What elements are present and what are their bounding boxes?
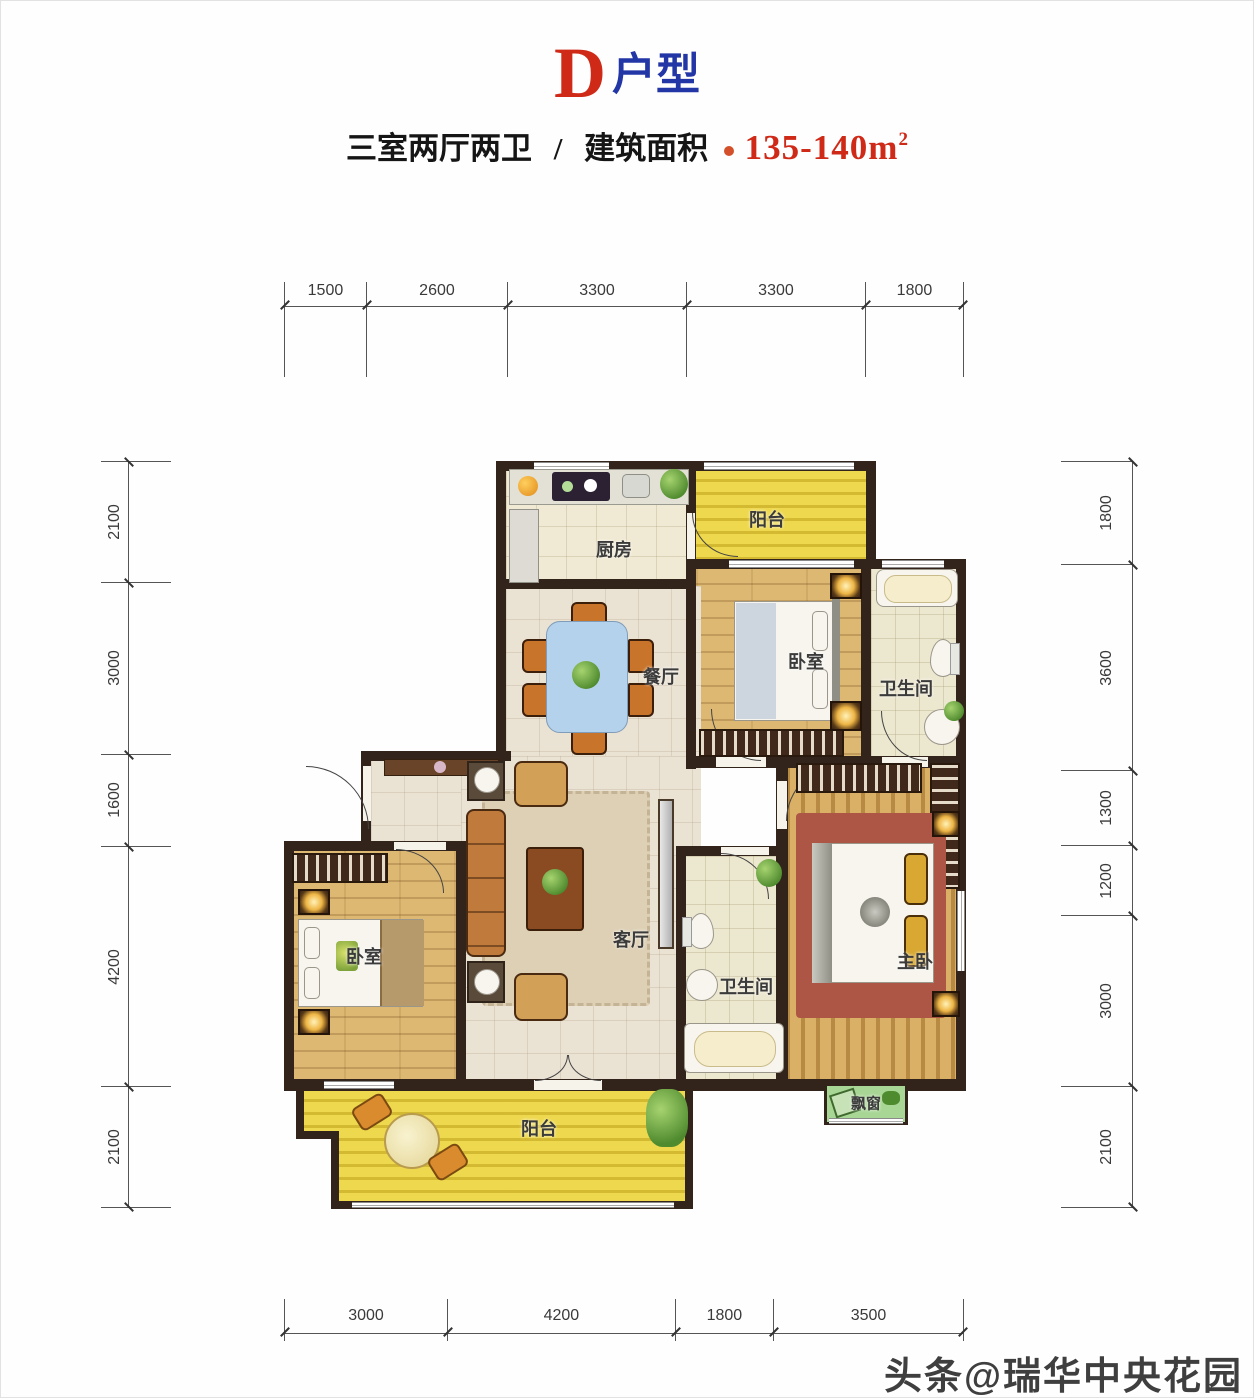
floor-plan: 阳台 厨房 餐厅 卧室 卫生间 卧室 客厅 卫生间 主卧 飘窗 阳台 bbox=[284, 461, 964, 1208]
nightstand-lamp bbox=[298, 1009, 330, 1035]
toilet-tank bbox=[682, 917, 692, 947]
headboard bbox=[812, 843, 832, 983]
dining-chair bbox=[522, 639, 548, 673]
divider: / bbox=[554, 131, 563, 166]
dimension-segment: 3000 bbox=[101, 583, 171, 755]
dimension-value: 1500 bbox=[285, 282, 366, 300]
room-label-bedroom-left: 卧室 bbox=[346, 943, 382, 969]
dimension-value: 1200 bbox=[1098, 859, 1116, 903]
area-superscript: 2 bbox=[898, 129, 908, 150]
pillow bbox=[812, 669, 828, 709]
dimension-value: 1800 bbox=[866, 282, 963, 300]
room-label-kitchen: 厨房 bbox=[596, 536, 632, 562]
room-label-dining: 餐厅 bbox=[643, 663, 679, 689]
pillow bbox=[904, 853, 928, 905]
room-label-bedroom-right: 卧室 bbox=[788, 648, 824, 674]
window bbox=[704, 462, 854, 470]
table-centerpiece bbox=[572, 661, 600, 689]
room-label-balcony-top: 阳台 bbox=[749, 506, 785, 532]
bath-plant bbox=[756, 859, 782, 887]
nightstand-lamp bbox=[932, 991, 960, 1017]
dimension-value: 1300 bbox=[1098, 786, 1116, 830]
dimension-segment: 3500 bbox=[774, 1299, 964, 1341]
dimension-segment: 3000 bbox=[1061, 916, 1133, 1088]
bed-decor bbox=[860, 897, 890, 927]
window bbox=[957, 891, 965, 971]
coffee-table-plant bbox=[542, 869, 568, 895]
bay-plant bbox=[882, 1091, 900, 1105]
dimension-value: 1800 bbox=[1098, 491, 1116, 535]
area-value: 135-140m bbox=[745, 128, 899, 167]
balcony-wall bbox=[331, 1131, 339, 1209]
dimension-segment: 3000 bbox=[284, 1299, 448, 1341]
area-label: 建筑面积 bbox=[584, 131, 708, 166]
balcony-plant bbox=[646, 1089, 688, 1147]
nightstand-lamp bbox=[830, 701, 862, 731]
nightstand-lamp bbox=[830, 573, 862, 599]
wall bbox=[866, 461, 876, 569]
floor-plan-page: D户型 三室两厅两卫 / 建筑面积 135-140m2 150026003300… bbox=[0, 0, 1254, 1398]
sink bbox=[686, 969, 718, 1001]
dimension-segment: 1800 bbox=[1061, 461, 1133, 565]
dimension-segment: 1200 bbox=[1061, 846, 1133, 915]
dimension-segment: 1800 bbox=[866, 282, 964, 377]
bed-blanket bbox=[380, 920, 424, 1006]
dimension-strip-top: 15002600330033001800 bbox=[284, 282, 964, 377]
dimension-segment: 2100 bbox=[101, 1087, 171, 1208]
dimension-strip-bottom: 3000420018003500 bbox=[284, 1299, 964, 1341]
dimension-strip-left: 21003000160042002100 bbox=[101, 461, 171, 1208]
dimension-value: 2100 bbox=[106, 1125, 124, 1169]
tv-cabinet bbox=[658, 799, 674, 949]
nightstand-lamp bbox=[932, 811, 960, 837]
layout-text: 三室两厅两卫 bbox=[346, 131, 532, 166]
unit-letter: D bbox=[554, 33, 606, 113]
dimension-segment: 3300 bbox=[508, 282, 687, 377]
dimension-value: 3000 bbox=[106, 646, 124, 690]
table-lamp bbox=[474, 969, 500, 995]
room-label-bay-window: 飘窗 bbox=[851, 1093, 881, 1114]
balcony-wall bbox=[685, 1081, 693, 1209]
room-label-balcony-bottom: 阳台 bbox=[521, 1115, 557, 1141]
nightstand-lamp bbox=[298, 889, 330, 915]
room-label-living: 客厅 bbox=[613, 926, 649, 952]
red-dot-icon bbox=[724, 146, 734, 156]
toilet-tank bbox=[950, 643, 960, 675]
fridge bbox=[509, 509, 539, 583]
sofa bbox=[466, 809, 506, 957]
dimension-value: 2600 bbox=[367, 282, 507, 300]
dimension-value: 4200 bbox=[448, 1307, 675, 1325]
dimension-value: 3600 bbox=[1098, 646, 1116, 690]
window bbox=[882, 560, 944, 568]
dimension-value: 3300 bbox=[687, 282, 865, 300]
room-label-master: 主卧 bbox=[897, 948, 933, 974]
dimension-segment: 3300 bbox=[687, 282, 866, 377]
window bbox=[352, 1202, 674, 1208]
armchair bbox=[514, 761, 568, 807]
pillow bbox=[304, 927, 320, 959]
window bbox=[324, 1081, 394, 1089]
dimension-value: 3300 bbox=[508, 282, 686, 300]
door-opening bbox=[534, 1080, 602, 1090]
dimension-value: 3000 bbox=[285, 1307, 447, 1325]
pillow bbox=[304, 967, 320, 999]
dimension-value: 4200 bbox=[106, 945, 124, 989]
watermark: 头条@瑞华中央花园 bbox=[884, 1345, 1243, 1398]
bath-plant bbox=[944, 701, 964, 721]
dimension-segment: 3600 bbox=[1061, 565, 1133, 771]
dimension-value: 2100 bbox=[106, 500, 124, 544]
window bbox=[729, 560, 854, 568]
entry-door-arc bbox=[306, 766, 369, 829]
dimension-value: 3500 bbox=[774, 1307, 963, 1325]
dining-chair bbox=[522, 683, 548, 717]
dimension-segment: 4200 bbox=[448, 1299, 676, 1341]
wall bbox=[686, 559, 696, 769]
bed-blanket bbox=[736, 603, 776, 719]
dimension-value: 1800 bbox=[676, 1307, 773, 1325]
kitchen-sink bbox=[622, 474, 650, 498]
wardrobe bbox=[292, 853, 388, 883]
burner-icon bbox=[584, 479, 597, 492]
dimension-segment: 1300 bbox=[1061, 771, 1133, 846]
door-opening bbox=[777, 781, 787, 829]
wall bbox=[496, 461, 506, 761]
dimension-strip-right: 180036001300120030002100 bbox=[1061, 461, 1133, 1208]
wall bbox=[861, 559, 871, 766]
bay-window-glass bbox=[829, 1118, 903, 1124]
pillow bbox=[812, 611, 828, 651]
dimension-segment: 1500 bbox=[284, 282, 367, 377]
subtitle: 三室两厅两卫 / 建筑面积 135-140m2 bbox=[1, 123, 1253, 168]
page-title: D户型 bbox=[1, 37, 1253, 109]
header: D户型 三室两厅两卫 / 建筑面积 135-140m2 bbox=[1, 37, 1253, 168]
unit-suffix: 户型 bbox=[612, 50, 700, 99]
dimension-segment: 4200 bbox=[101, 847, 171, 1087]
dimension-value: 1600 bbox=[106, 778, 124, 822]
armchair bbox=[514, 973, 568, 1021]
dimension-segment: 1800 bbox=[676, 1299, 774, 1341]
room-label-bathroom-center: 卫生间 bbox=[719, 973, 773, 999]
dimension-segment: 2100 bbox=[1061, 1087, 1133, 1208]
dimension-segment: 1600 bbox=[101, 755, 171, 847]
kitchen-plant bbox=[660, 469, 688, 499]
wardrobe bbox=[796, 763, 922, 793]
dimension-value: 3000 bbox=[1098, 979, 1116, 1023]
table-lamp bbox=[474, 767, 500, 793]
room-label-bathroom-right: 卫生间 bbox=[879, 675, 933, 701]
dimension-value: 2100 bbox=[1098, 1125, 1116, 1169]
fruit-bowl bbox=[518, 476, 538, 496]
bathtub-inner bbox=[694, 1031, 776, 1067]
dimension-segment: 2100 bbox=[101, 461, 171, 583]
burner-icon bbox=[562, 481, 573, 492]
wall bbox=[456, 841, 466, 1089]
cooktop bbox=[552, 472, 610, 501]
bathtub-inner bbox=[884, 575, 952, 603]
dimension-segment: 2600 bbox=[367, 282, 508, 377]
wardrobe bbox=[699, 729, 844, 757]
console-decor bbox=[434, 761, 446, 773]
